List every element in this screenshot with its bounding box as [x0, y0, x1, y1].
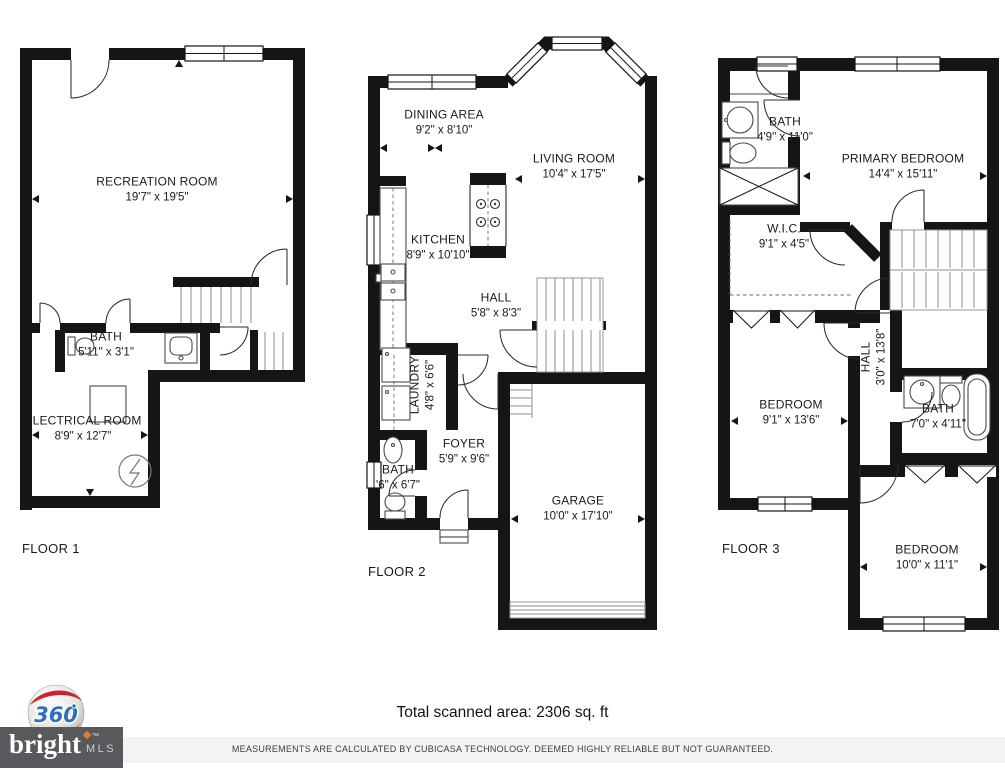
trademark-symbol: ™ — [92, 733, 99, 740]
room-dims: 5'11" x 3'1" — [78, 345, 134, 360]
washer-dryer-icon — [382, 348, 410, 430]
mls-text: MLS — [86, 743, 116, 755]
room-label-hall-f3: HALL 3'0" x 13'8" — [859, 329, 890, 386]
room-name: BATH — [757, 115, 813, 131]
room-name: DINING AREA — [404, 108, 484, 124]
room-label-foyer: FOYER 5'9" x 9'6" — [439, 437, 489, 468]
floor-3-label: FLOOR 3 — [722, 541, 780, 556]
room-name: RECREATION ROOM — [96, 175, 217, 191]
room-dims: 14'4" x 15'11" — [842, 167, 965, 182]
room-name: BATH — [376, 463, 420, 479]
room-name: LAUNDRY — [408, 356, 424, 415]
room-dims: 10'0" x 17'10" — [543, 509, 612, 524]
room-dims: 10'4" x 17'5" — [533, 167, 615, 182]
room-label-bedroom-bottom: BEDROOM 10'0" x 11'1" — [895, 543, 958, 574]
entry-steps — [440, 530, 468, 543]
floor-1-drawing — [15, 40, 310, 560]
room-dims: '6" x 6'7" — [376, 478, 420, 493]
garage-door — [510, 602, 645, 618]
360-text: 360 — [34, 703, 78, 727]
room-label-bath-f1: BATH 5'11" x 3'1" — [78, 330, 134, 361]
degree-dot — [72, 704, 76, 708]
room-dims: 7'0" x 4'11" — [910, 417, 966, 432]
room-dims: 5'8" x 8'3" — [471, 306, 521, 321]
room-dims: 4'9" x 11'0" — [757, 130, 813, 145]
room-name: W.I.C. — [759, 222, 809, 238]
room-name: BATH — [910, 402, 966, 418]
room-name: BEDROOM — [895, 543, 958, 559]
bright-mls-logo: bright ™ MLS — [0, 727, 123, 768]
room-label-electrical-room: ELECTRICAL ROOM 8'9" x 12'7" — [24, 414, 141, 445]
room-name: HALL — [859, 329, 875, 386]
shower-icon — [720, 168, 798, 205]
floor1-doors — [40, 60, 287, 355]
room-dims: 9'1" x 4'5" — [759, 237, 809, 252]
room-label-hall-f2: HALL 5'8" x 8'3" — [471, 291, 521, 322]
kitchen-counter — [376, 188, 406, 350]
room-label-bath-f2: BATH '6" x 6'7" — [376, 463, 420, 494]
room-label-living-room: LIVING ROOM 10'4" x 17'5" — [533, 152, 615, 183]
floor1-window — [185, 46, 263, 61]
floorplan-canvas: RECREATION ROOM 19'7" x 19'5" BATH 5'11"… — [0, 0, 1005, 700]
room-name: HALL — [471, 291, 521, 307]
room-label-kitchen: KITCHEN 8'9" x 10'10" — [406, 233, 469, 264]
room-label-laundry: LAUNDRY 4'8" x 6'6" — [408, 356, 439, 415]
room-label-primary-bedroom: PRIMARY BEDROOM 14'4" x 15'11" — [842, 152, 965, 183]
bright-wordmark: bright — [9, 729, 81, 760]
room-dims: 9'2" x 8'10" — [404, 123, 484, 138]
room-name: BATH — [78, 330, 134, 346]
floorplan-page: { "floors": [ { "label": "FLOOR 1", "roo… — [0, 0, 1005, 768]
floor3-stairs — [890, 230, 987, 310]
room-dims: 9'1" x 13'6" — [759, 413, 822, 428]
room-dims: 3'0" x 13'8" — [874, 329, 889, 386]
room-dims: 19'7" x 19'5" — [96, 190, 217, 205]
room-dims: 8'9" x 12'7" — [24, 429, 141, 444]
room-dims: 4'8" x 6'6" — [423, 356, 438, 415]
garage-steps — [510, 384, 532, 418]
room-name: GARAGE — [543, 494, 612, 510]
floor2-stairs — [537, 278, 603, 372]
room-dims: 5'9" x 9'6" — [439, 452, 489, 467]
total-scanned-area: Total scanned area: 2306 sq. ft — [0, 704, 1005, 722]
room-name: LIVING ROOM — [533, 152, 615, 168]
room-name: BEDROOM — [759, 398, 822, 414]
room-dims: 10'0" x 11'1" — [895, 558, 958, 573]
room-dims: 8'9" x 10'10" — [406, 248, 469, 263]
floor-1-label: FLOOR 1 — [22, 541, 80, 556]
room-name: FOYER — [439, 437, 489, 453]
disclaimer-text: MEASUREMENTS ARE CALCULATED BY CUBICASA … — [0, 744, 1005, 754]
room-label-garage: GARAGE 10'0" x 17'10" — [543, 494, 612, 525]
room-label-dining-area: DINING AREA 9'2" x 8'10" — [404, 108, 484, 139]
room-name: KITCHEN — [406, 233, 469, 249]
electrical-panel-icon — [119, 455, 151, 487]
floor-2-label: FLOOR 2 — [368, 564, 426, 579]
room-name: ELECTRICAL ROOM — [24, 414, 141, 430]
room-label-recreation-room: RECREATION ROOM 19'7" x 19'5" — [96, 175, 217, 206]
room-name: PRIMARY BEDROOM — [842, 152, 965, 168]
room-label-wic: W.I.C. 9'1" x 4'5" — [759, 222, 809, 253]
room-label-bedroom-mid: BEDROOM 9'1" x 13'6" — [759, 398, 822, 429]
room-label-bath-f3-upper: BATH 4'9" x 11'0" — [757, 115, 813, 146]
room-label-bath-f3-lower: BATH 7'0" x 4'11" — [910, 402, 966, 433]
stove-icon — [470, 185, 506, 246]
sink-icon — [165, 333, 197, 363]
